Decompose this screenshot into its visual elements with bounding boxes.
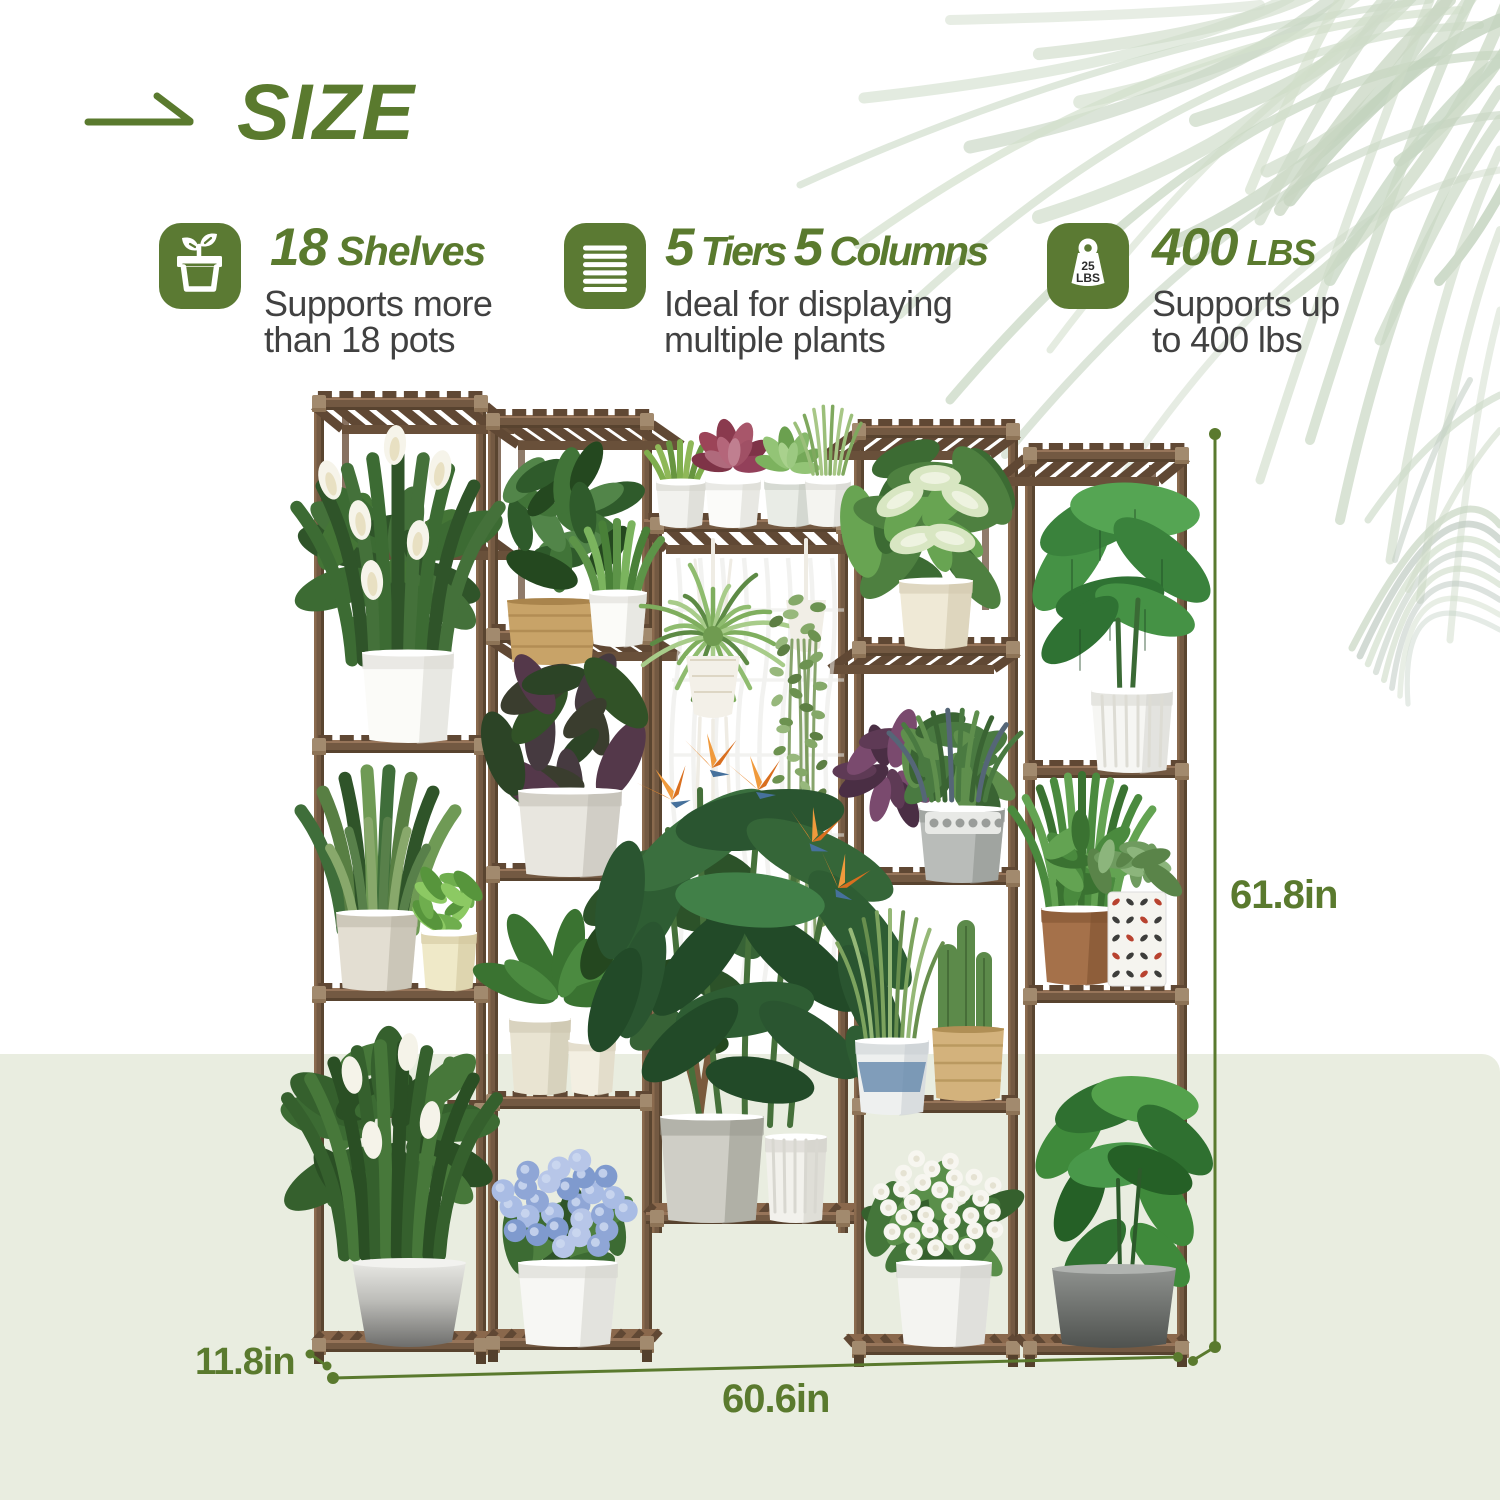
svg-text:LBS: LBS [1076, 271, 1100, 285]
